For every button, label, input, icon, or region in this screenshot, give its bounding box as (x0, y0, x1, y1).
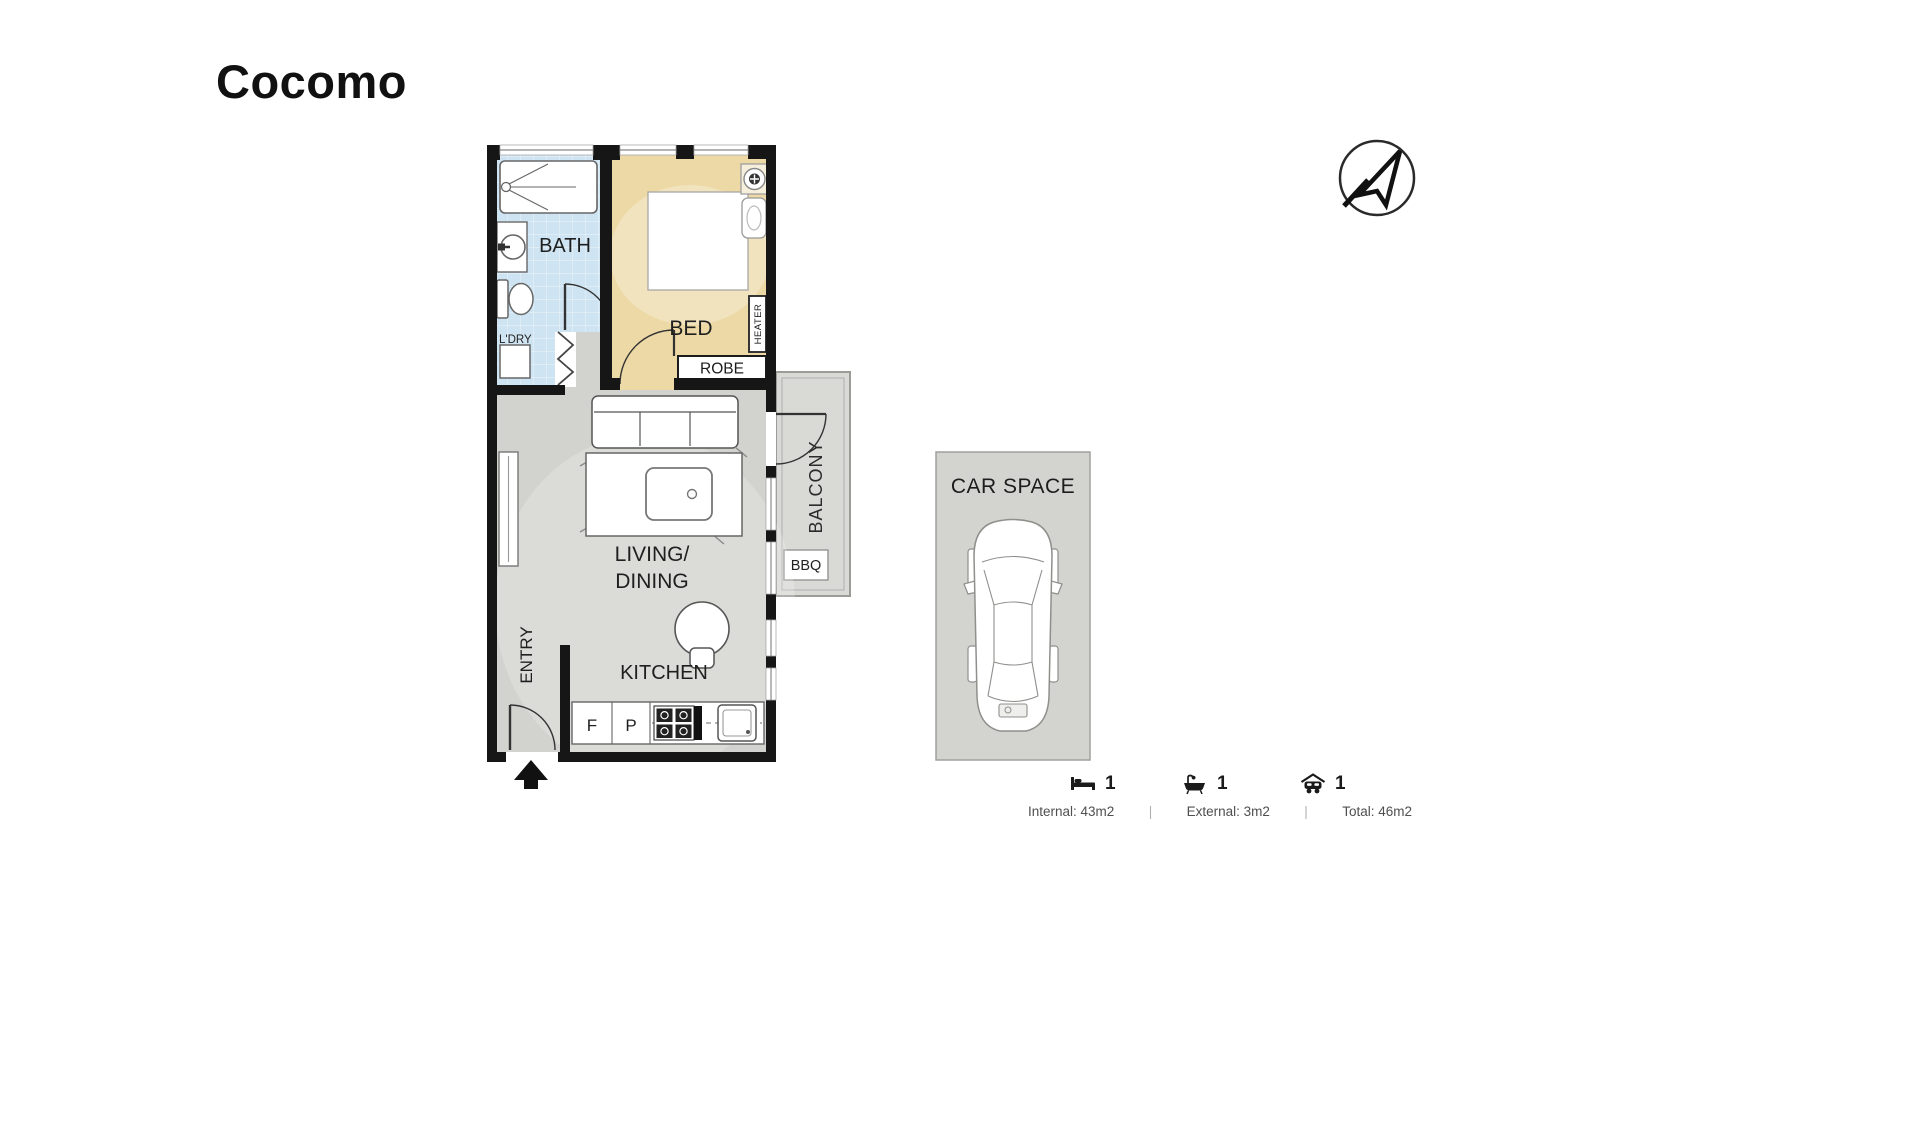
robe-label: ROBE (700, 361, 744, 378)
laundry-label: L'DRY (499, 334, 532, 346)
island-sink (646, 468, 712, 520)
fan-unit (741, 164, 768, 194)
legend-icons-row: 1 1 1 (1040, 772, 1370, 802)
bed-icon (1070, 773, 1096, 795)
bath-label: BATH (539, 235, 591, 257)
kitchen-sink (718, 705, 756, 741)
floor-plan: BALCONY BBQ CAR SPACE (470, 130, 1440, 830)
beds-count: 1 (1105, 772, 1116, 796)
legend-baths: 1 (1182, 772, 1228, 796)
sofa (592, 396, 738, 448)
living-label-line2: DINING (615, 570, 689, 593)
linen-cupboard (499, 452, 518, 566)
heater-box: HEATER (749, 296, 766, 352)
robe: ROBE (678, 356, 766, 380)
kitchen-label: KITCHEN (620, 662, 708, 684)
car-top-view (964, 520, 1062, 732)
car-space-label: CAR SPACE (951, 475, 1075, 498)
entry-arrow (514, 760, 548, 789)
car-garage-icon (1300, 773, 1326, 795)
window-top-bath (500, 145, 593, 155)
living-label-line1: LIVING/ (615, 543, 690, 566)
window-top-bed-2 (694, 145, 748, 155)
baths-count: 1 (1217, 772, 1228, 796)
bath-icon (1182, 773, 1208, 795)
window-right-3 (766, 620, 776, 656)
car-space: CAR SPACE (936, 452, 1090, 760)
balcony-label: BALCONY (806, 440, 826, 533)
window-top-bed-1 (620, 145, 676, 155)
legend-divider: | (1304, 804, 1308, 819)
legend-cars: 1 (1300, 772, 1346, 796)
legend-beds: 1 (1070, 772, 1116, 796)
cars-count: 1 (1335, 772, 1346, 796)
fridge-label: F (587, 716, 597, 735)
window-right-4 (766, 668, 776, 700)
internal-area: Internal: 43m2 (1028, 804, 1114, 819)
bbq-label: BBQ (791, 558, 822, 574)
bedroom-label: BED (669, 317, 712, 340)
window-right-2 (766, 542, 776, 594)
total-area: Total: 46m2 (1342, 804, 1412, 819)
toilet (497, 280, 533, 318)
plan-title: Cocomo (216, 54, 407, 109)
north-compass-icon (1340, 141, 1414, 215)
island-bench (580, 447, 747, 544)
balcony-door-opening (766, 412, 776, 466)
pantry-label: P (625, 716, 636, 735)
legend-areas-row: Internal: 43m2 | External: 3m2 | Total: … (1028, 804, 1412, 819)
page: { "title": "Cocomo", "plan": { "bath": {… (0, 0, 1920, 1125)
external-area: External: 3m2 (1187, 804, 1270, 819)
cooktop (654, 706, 702, 740)
entry-opening (506, 752, 558, 762)
washer (500, 345, 530, 378)
heater-label: HEATER (753, 304, 764, 345)
window-right-1 (766, 478, 776, 530)
entry-label: ENTRY (517, 626, 536, 683)
legend-divider: | (1149, 804, 1153, 819)
bed (648, 192, 748, 290)
bedside-chair (742, 198, 766, 238)
